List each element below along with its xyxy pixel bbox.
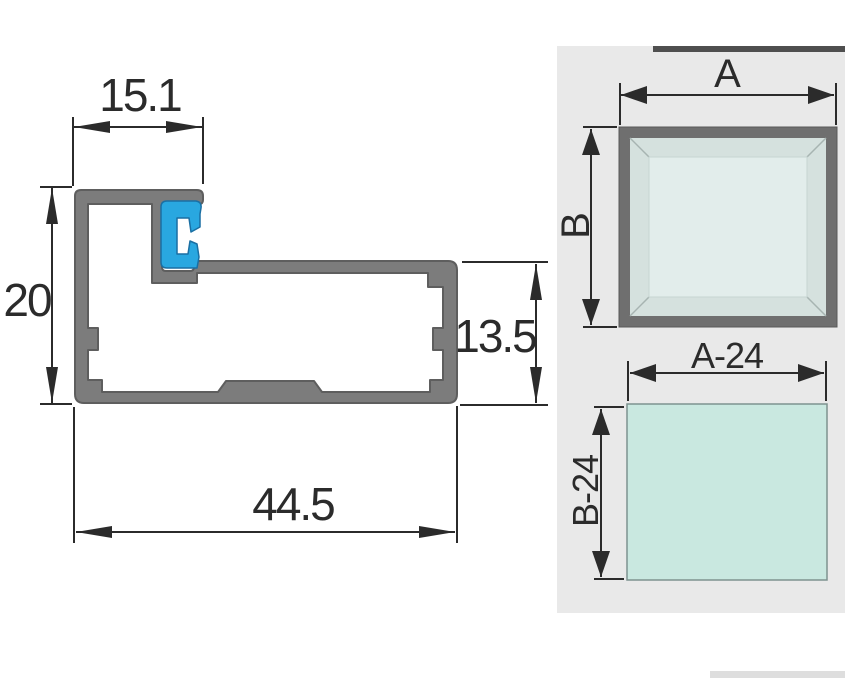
dim-label-top-width: 15.1	[99, 72, 181, 118]
aluminum-profile-body	[75, 190, 457, 403]
technical-drawing-page: 15.1 20 13.5 44.5 A B A-24 B-24	[0, 0, 845, 678]
dim-label-glass-height: B-24	[568, 455, 604, 527]
thermal-break-clip	[161, 201, 201, 268]
arrow-down-icon	[46, 367, 58, 403]
arrow-up-icon	[530, 264, 542, 300]
frame-glass-center	[649, 157, 807, 297]
panel-bottom-strip	[710, 671, 845, 678]
dimension-top-width	[73, 117, 203, 186]
panel-top-strip	[653, 46, 845, 52]
dim-label-frame-width: A	[714, 54, 740, 94]
glass-panel-view	[627, 404, 827, 580]
arrow-down-icon	[530, 367, 542, 403]
frame-front-view	[619, 127, 837, 327]
arrow-right-icon	[419, 526, 455, 538]
profile-cross-section	[75, 190, 457, 403]
arrow-right-icon	[166, 121, 202, 133]
dim-label-glass-width: A-24	[691, 338, 763, 374]
dim-label-left-height: 20	[3, 277, 50, 323]
dim-label-bottom-width: 44.5	[252, 481, 334, 527]
dim-label-right-height: 13.5	[454, 313, 536, 359]
arrow-up-icon	[46, 188, 58, 224]
arrow-left-icon	[74, 121, 110, 133]
glass-pane	[627, 404, 827, 580]
dim-label-frame-height: B	[556, 213, 596, 239]
arrow-left-icon	[76, 526, 112, 538]
